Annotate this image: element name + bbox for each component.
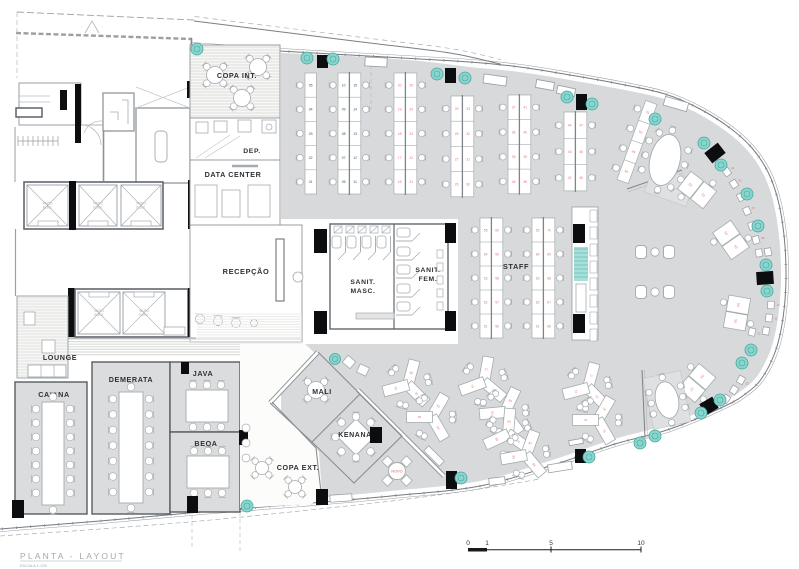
svg-text:36: 36 bbox=[512, 130, 516, 134]
svg-text:ELEV.: ELEV. bbox=[139, 313, 148, 317]
svg-text:ELEV.: ELEV. bbox=[43, 206, 52, 210]
svg-text:STAFF: STAFF bbox=[503, 262, 529, 271]
svg-text:05: 05 bbox=[738, 178, 742, 182]
svg-text:FEM.: FEM. bbox=[419, 276, 438, 283]
svg-text:70: 70 bbox=[547, 228, 551, 232]
svg-text:31: 31 bbox=[466, 157, 470, 161]
svg-text:18: 18 bbox=[398, 132, 402, 136]
svg-text:07: 07 bbox=[752, 206, 756, 210]
svg-text:28: 28 bbox=[455, 132, 459, 136]
svg-text:16: 16 bbox=[398, 180, 402, 184]
svg-text:12: 12 bbox=[353, 156, 357, 160]
svg-text:SANIT.: SANIT. bbox=[350, 279, 375, 286]
svg-text:19: 19 bbox=[398, 108, 402, 112]
svg-text:23: 23 bbox=[409, 132, 413, 136]
svg-text:17: 17 bbox=[398, 156, 402, 160]
svg-text:11: 11 bbox=[353, 180, 357, 184]
svg-text:95: 95 bbox=[418, 415, 422, 419]
svg-text:54: 54 bbox=[736, 303, 741, 308]
svg-text:26: 26 bbox=[455, 183, 459, 187]
svg-text:1: 1 bbox=[485, 540, 489, 547]
svg-text:56: 56 bbox=[495, 324, 499, 328]
svg-text:76: 76 bbox=[584, 418, 588, 422]
svg-text:PLANTA - LAYOUT: PLANTA - LAYOUT bbox=[20, 551, 126, 561]
svg-text:10: 10 bbox=[776, 303, 780, 307]
svg-text:ELEV.: ELEV. bbox=[93, 206, 102, 210]
svg-text:57: 57 bbox=[495, 300, 499, 304]
svg-text:02: 02 bbox=[309, 156, 313, 160]
svg-text:69: 69 bbox=[547, 252, 551, 256]
svg-text:58: 58 bbox=[495, 276, 499, 280]
svg-text:45: 45 bbox=[579, 176, 583, 180]
svg-text:63: 63 bbox=[536, 276, 540, 280]
svg-text:15: 15 bbox=[353, 83, 357, 87]
svg-text:43: 43 bbox=[568, 150, 572, 154]
svg-text:DATA CENTER: DATA CENTER bbox=[205, 170, 262, 179]
svg-text:61: 61 bbox=[536, 324, 540, 328]
svg-text:10: 10 bbox=[637, 540, 645, 547]
svg-text:29: 29 bbox=[455, 107, 459, 111]
svg-text:01: 01 bbox=[309, 180, 313, 184]
svg-text:64: 64 bbox=[536, 252, 540, 256]
svg-text:ELEV.: ELEV. bbox=[94, 313, 103, 317]
svg-text:11: 11 bbox=[774, 317, 777, 321]
svg-text:30: 30 bbox=[466, 183, 470, 187]
svg-text:38: 38 bbox=[523, 180, 527, 184]
svg-text:34: 34 bbox=[512, 180, 516, 184]
svg-text:JAVA: JAVA bbox=[193, 369, 214, 378]
svg-text:03: 03 bbox=[309, 132, 313, 136]
svg-text:14: 14 bbox=[730, 401, 734, 405]
svg-text:21: 21 bbox=[409, 180, 413, 184]
svg-text:04: 04 bbox=[731, 166, 735, 170]
svg-text:LOUNGE: LOUNGE bbox=[43, 353, 77, 362]
svg-text:DEP.: DEP. bbox=[243, 148, 260, 155]
svg-text:ELEV.: ELEV. bbox=[136, 206, 145, 210]
svg-text:10: 10 bbox=[342, 83, 346, 87]
svg-text:0: 0 bbox=[466, 540, 470, 547]
svg-text:5: 5 bbox=[549, 540, 553, 547]
svg-text:44: 44 bbox=[568, 124, 572, 128]
svg-text:42: 42 bbox=[568, 176, 572, 180]
svg-text:NOVO: NOVO bbox=[391, 470, 402, 474]
svg-text:54: 54 bbox=[484, 252, 488, 256]
svg-text:06: 06 bbox=[342, 180, 346, 184]
svg-text:MASC.: MASC. bbox=[351, 288, 376, 295]
svg-text:08: 08 bbox=[761, 236, 765, 240]
svg-text:13: 13 bbox=[353, 132, 357, 136]
svg-text:12: 12 bbox=[757, 332, 761, 336]
svg-text:07: 07 bbox=[342, 156, 346, 160]
svg-text:68: 68 bbox=[547, 276, 551, 280]
svg-text:ESCALA 1:125: ESCALA 1:125 bbox=[20, 563, 47, 568]
svg-text:14: 14 bbox=[353, 108, 357, 112]
svg-text:05: 05 bbox=[309, 83, 313, 87]
svg-text:53: 53 bbox=[484, 276, 488, 280]
svg-text:08: 08 bbox=[342, 132, 346, 136]
svg-text:RECEPÇÃO: RECEPÇÃO bbox=[223, 267, 270, 276]
svg-text:22: 22 bbox=[409, 156, 413, 160]
svg-text:04: 04 bbox=[309, 108, 313, 112]
svg-text:65: 65 bbox=[536, 228, 540, 232]
svg-text:46: 46 bbox=[579, 150, 583, 154]
svg-text:MALI: MALI bbox=[312, 389, 332, 396]
svg-text:KENANA: KENANA bbox=[338, 432, 372, 439]
svg-text:41: 41 bbox=[523, 106, 527, 110]
svg-text:47: 47 bbox=[579, 124, 583, 128]
svg-text:39: 39 bbox=[523, 155, 527, 159]
svg-text:33: 33 bbox=[466, 107, 470, 111]
svg-text:35: 35 bbox=[512, 155, 516, 159]
svg-text:67: 67 bbox=[547, 300, 551, 304]
svg-text:82: 82 bbox=[490, 411, 494, 415]
svg-text:40: 40 bbox=[523, 130, 527, 134]
svg-text:55: 55 bbox=[733, 319, 738, 324]
svg-text:51: 51 bbox=[484, 324, 488, 328]
svg-text:20: 20 bbox=[398, 83, 402, 87]
svg-text:32: 32 bbox=[466, 132, 470, 136]
svg-text:55: 55 bbox=[484, 228, 488, 232]
svg-text:59: 59 bbox=[495, 252, 499, 256]
svg-text:27: 27 bbox=[455, 157, 459, 161]
svg-text:66: 66 bbox=[547, 324, 551, 328]
svg-text:13: 13 bbox=[746, 381, 750, 385]
svg-text:62: 62 bbox=[536, 300, 540, 304]
svg-text:52: 52 bbox=[484, 300, 488, 304]
svg-text:60: 60 bbox=[495, 228, 499, 232]
svg-text:COPA EXT.: COPA EXT. bbox=[277, 463, 320, 472]
svg-text:24: 24 bbox=[409, 108, 413, 112]
svg-text:COPA INT.: COPA INT. bbox=[217, 71, 257, 80]
svg-text:83: 83 bbox=[507, 419, 511, 423]
svg-text:09: 09 bbox=[342, 108, 346, 112]
svg-text:37: 37 bbox=[512, 106, 516, 110]
svg-text:25: 25 bbox=[409, 83, 413, 87]
